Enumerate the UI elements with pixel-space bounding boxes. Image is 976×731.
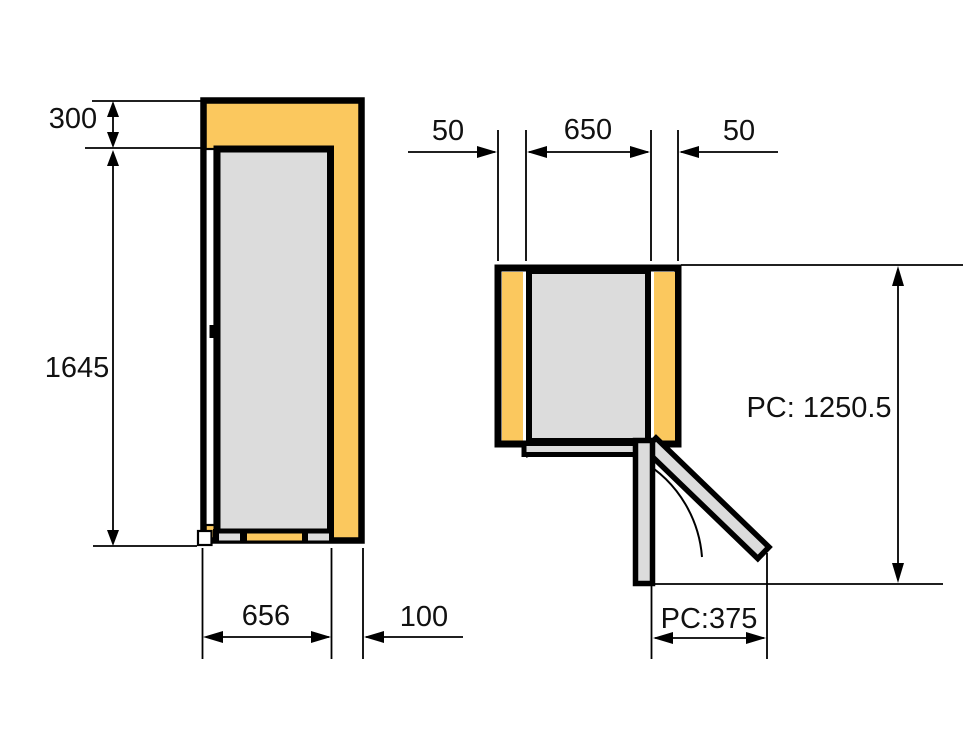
dim-door-projection: PC:375 — [652, 553, 768, 659]
top-appliance-body — [529, 271, 648, 441]
dim-650-arrow-right-icon — [630, 146, 650, 158]
dim-total-depth-value: PC: 1250.5 — [746, 392, 891, 424]
installation-clearance-diagram: 300 1645 656 100 — [0, 0, 976, 731]
dim-width-value: 650 — [564, 114, 612, 146]
dim-pc1250-arrow-down-icon — [892, 563, 904, 583]
side-base-vent-right — [308, 534, 329, 541]
top-clearance-left — [502, 272, 523, 441]
side-appliance-body — [217, 149, 331, 532]
top-view: 50 650 50 PC: 1250.5 PC:375 — [408, 114, 963, 659]
dim-width-group: 50 650 50 — [408, 114, 778, 261]
top-clearance-right — [654, 272, 675, 441]
dim-depth-value: 656 — [242, 600, 290, 632]
dim-rear-clearance: 100 — [363, 548, 463, 659]
side-base-vent-center — [247, 534, 302, 541]
diagram-canvas: 300 1645 656 100 — [0, 0, 976, 731]
dim-top-clearance: 300 — [49, 101, 201, 148]
door-open-135-bar — [645, 438, 769, 559]
dim-50-left-arrow-icon — [477, 146, 497, 158]
dim-100-arrow-left-icon — [364, 631, 384, 643]
dim-300-arrow-down-icon — [107, 132, 119, 148]
dim-pc1250-arrow-up-icon — [892, 266, 904, 286]
side-door-handle — [210, 325, 216, 338]
dim-1645-arrow-down-icon — [107, 530, 119, 546]
door-closed — [524, 444, 638, 455]
dim-left-clearance-value: 50 — [432, 115, 464, 147]
door-open-135 — [645, 438, 769, 559]
dim-50-right-arrow-icon — [679, 146, 699, 158]
dim-rear-clearance-value: 100 — [400, 601, 448, 633]
side-front-foot — [198, 531, 212, 545]
dim-656-arrow-left-icon — [203, 631, 223, 643]
dim-height: 1645 — [45, 150, 197, 546]
side-base-vent-left — [219, 534, 240, 541]
dim-top-clearance-value: 300 — [49, 103, 97, 135]
dim-door-projection-value: PC:375 — [661, 603, 758, 635]
dim-300-arrow-up-icon — [107, 101, 119, 117]
dim-depth: 656 — [203, 548, 332, 659]
dim-656-arrow-right-icon — [311, 631, 331, 643]
door-open-90 — [636, 441, 653, 584]
dim-650-arrow-left-icon — [527, 146, 547, 158]
dim-total-depth: PC: 1250.5 — [655, 265, 963, 584]
dim-1645-arrow-up-icon — [107, 150, 119, 166]
dim-right-clearance-value: 50 — [723, 115, 755, 147]
side-view: 300 1645 656 100 — [45, 101, 463, 660]
dim-height-value: 1645 — [45, 352, 110, 384]
